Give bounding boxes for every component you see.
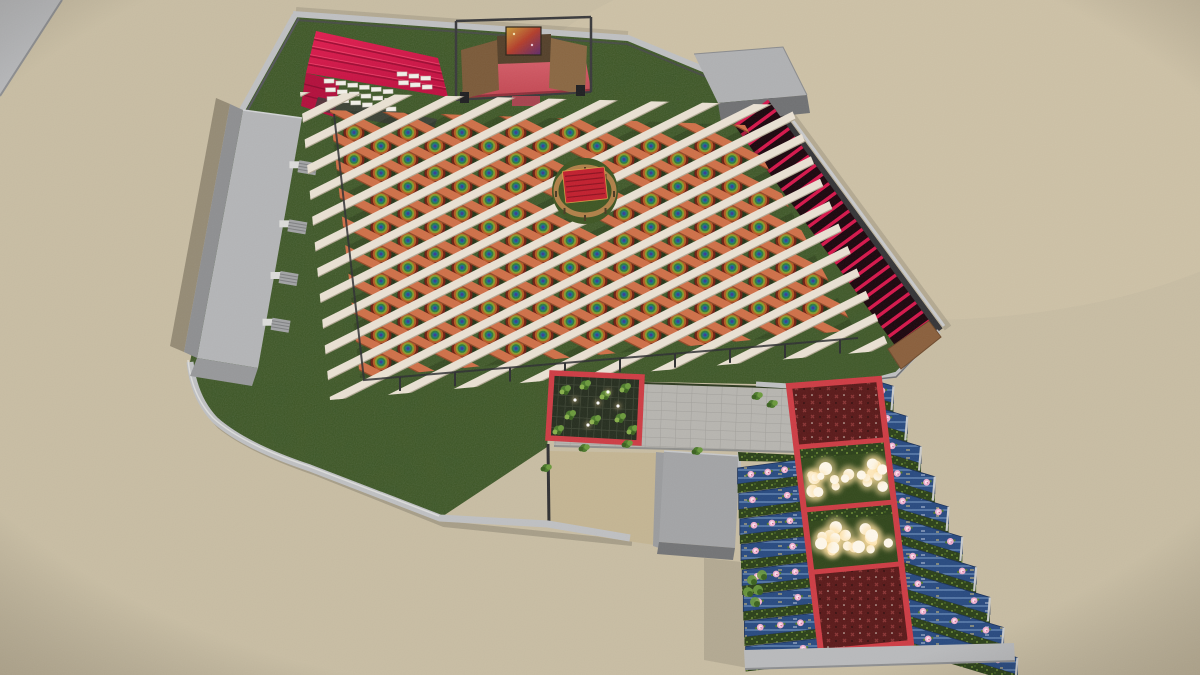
film-grain bbox=[0, 0, 1200, 675]
atmosphere bbox=[0, 0, 1200, 675]
venue-3d-render bbox=[0, 0, 1200, 675]
scene-svg bbox=[0, 0, 1200, 675]
